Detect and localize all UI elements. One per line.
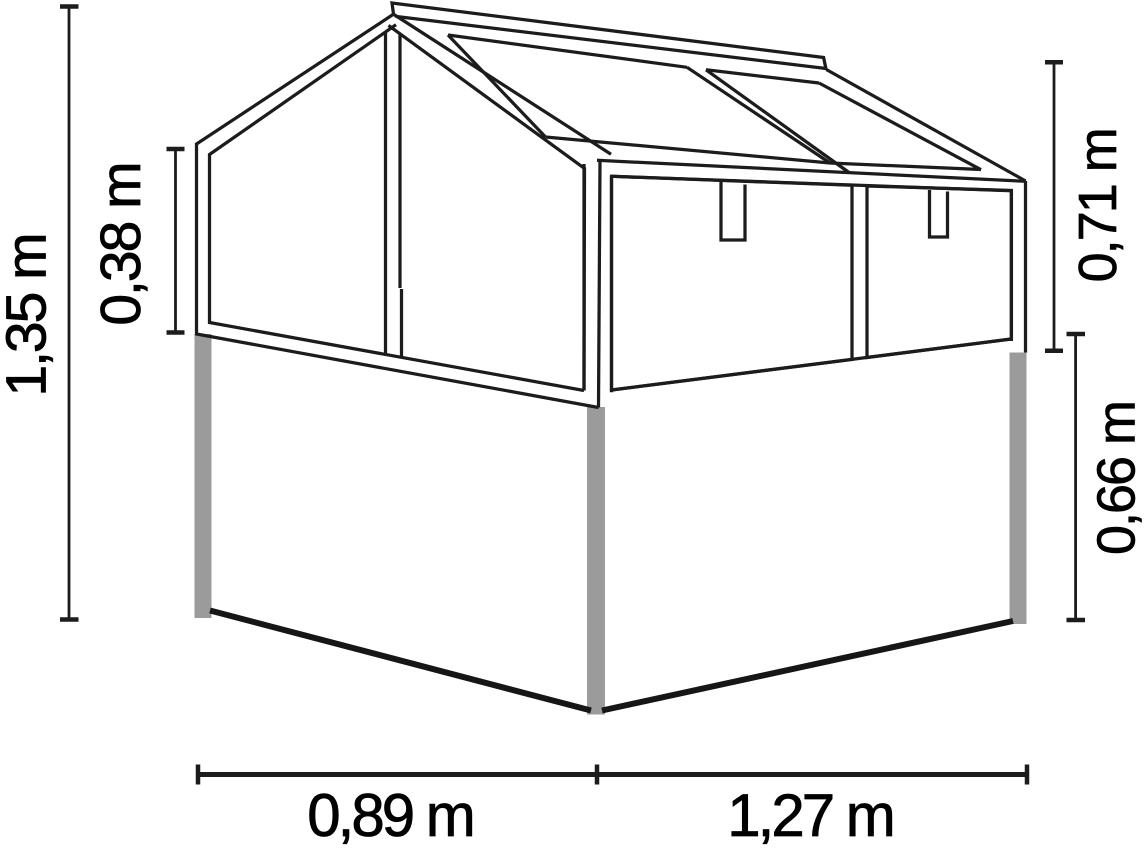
svg-text:0,38 m: 0,38 m: [89, 163, 153, 325]
svg-text:1,27 m: 1,27 m: [727, 782, 892, 848]
svg-text:0,89 m: 0,89 m: [307, 782, 472, 848]
svg-text:1,35 m: 1,35 m: [0, 234, 59, 396]
svg-text:0,66 m: 0,66 m: [1087, 402, 1147, 555]
svg-text:0,71 m: 0,71 m: [1068, 129, 1128, 282]
